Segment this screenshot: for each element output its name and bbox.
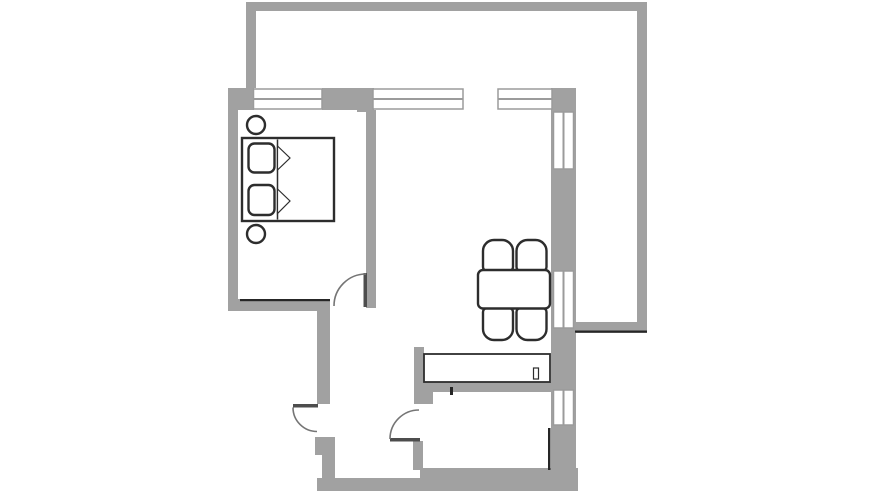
- hall-west-wall-foot: [322, 455, 335, 480]
- hall-west-wall-upper: [317, 299, 330, 404]
- bedroom-living-divider-wall: [366, 110, 376, 308]
- entry-door-leaf: [293, 404, 318, 408]
- outer-wall-bottom: [317, 478, 578, 491]
- terrace-wall-top: [246, 2, 647, 11]
- bedroom-wall-edge-line: [240, 299, 330, 301]
- terrace-wall-left: [246, 11, 256, 88]
- outer-wall-left: [228, 88, 238, 311]
- bedroom-door-swing: [334, 274, 366, 306]
- kitchen-east-wall-edge-line: [548, 428, 551, 470]
- terrace-wall-right: [637, 2, 647, 323]
- kitchen-north-wall: [414, 382, 554, 392]
- chair-top-left: [483, 240, 513, 271]
- nightstand-top: [247, 116, 265, 134]
- outer-wall-top-block: [357, 88, 374, 112]
- sideboard: [424, 354, 550, 382]
- sideboard-divider: [534, 368, 539, 379]
- chair-bottom-right: [517, 308, 547, 340]
- kitchen-door-swing: [390, 410, 419, 439]
- entry-door-swing: [293, 408, 317, 432]
- floor-plan-canvas: [0, 0, 872, 491]
- outer-wall-top-mid: [322, 88, 357, 110]
- pillow-bottom: [249, 185, 275, 215]
- chair-bottom-left: [483, 308, 513, 340]
- terrace-wall-edge-line: [575, 331, 647, 333]
- hall-west-wall-lower: [315, 437, 335, 455]
- floor-plan: [0, 0, 872, 491]
- nightstand-bottom: [247, 225, 265, 243]
- dining-table: [478, 270, 550, 309]
- kitchen-door-leaf: [390, 438, 420, 442]
- bedroom-door-leaf: [364, 273, 368, 307]
- pillow-top: [249, 144, 275, 173]
- hall-kitchen-wall-lower: [413, 441, 423, 470]
- chair-top-right: [517, 240, 547, 271]
- kitchen-north-wall-stub: [450, 387, 453, 395]
